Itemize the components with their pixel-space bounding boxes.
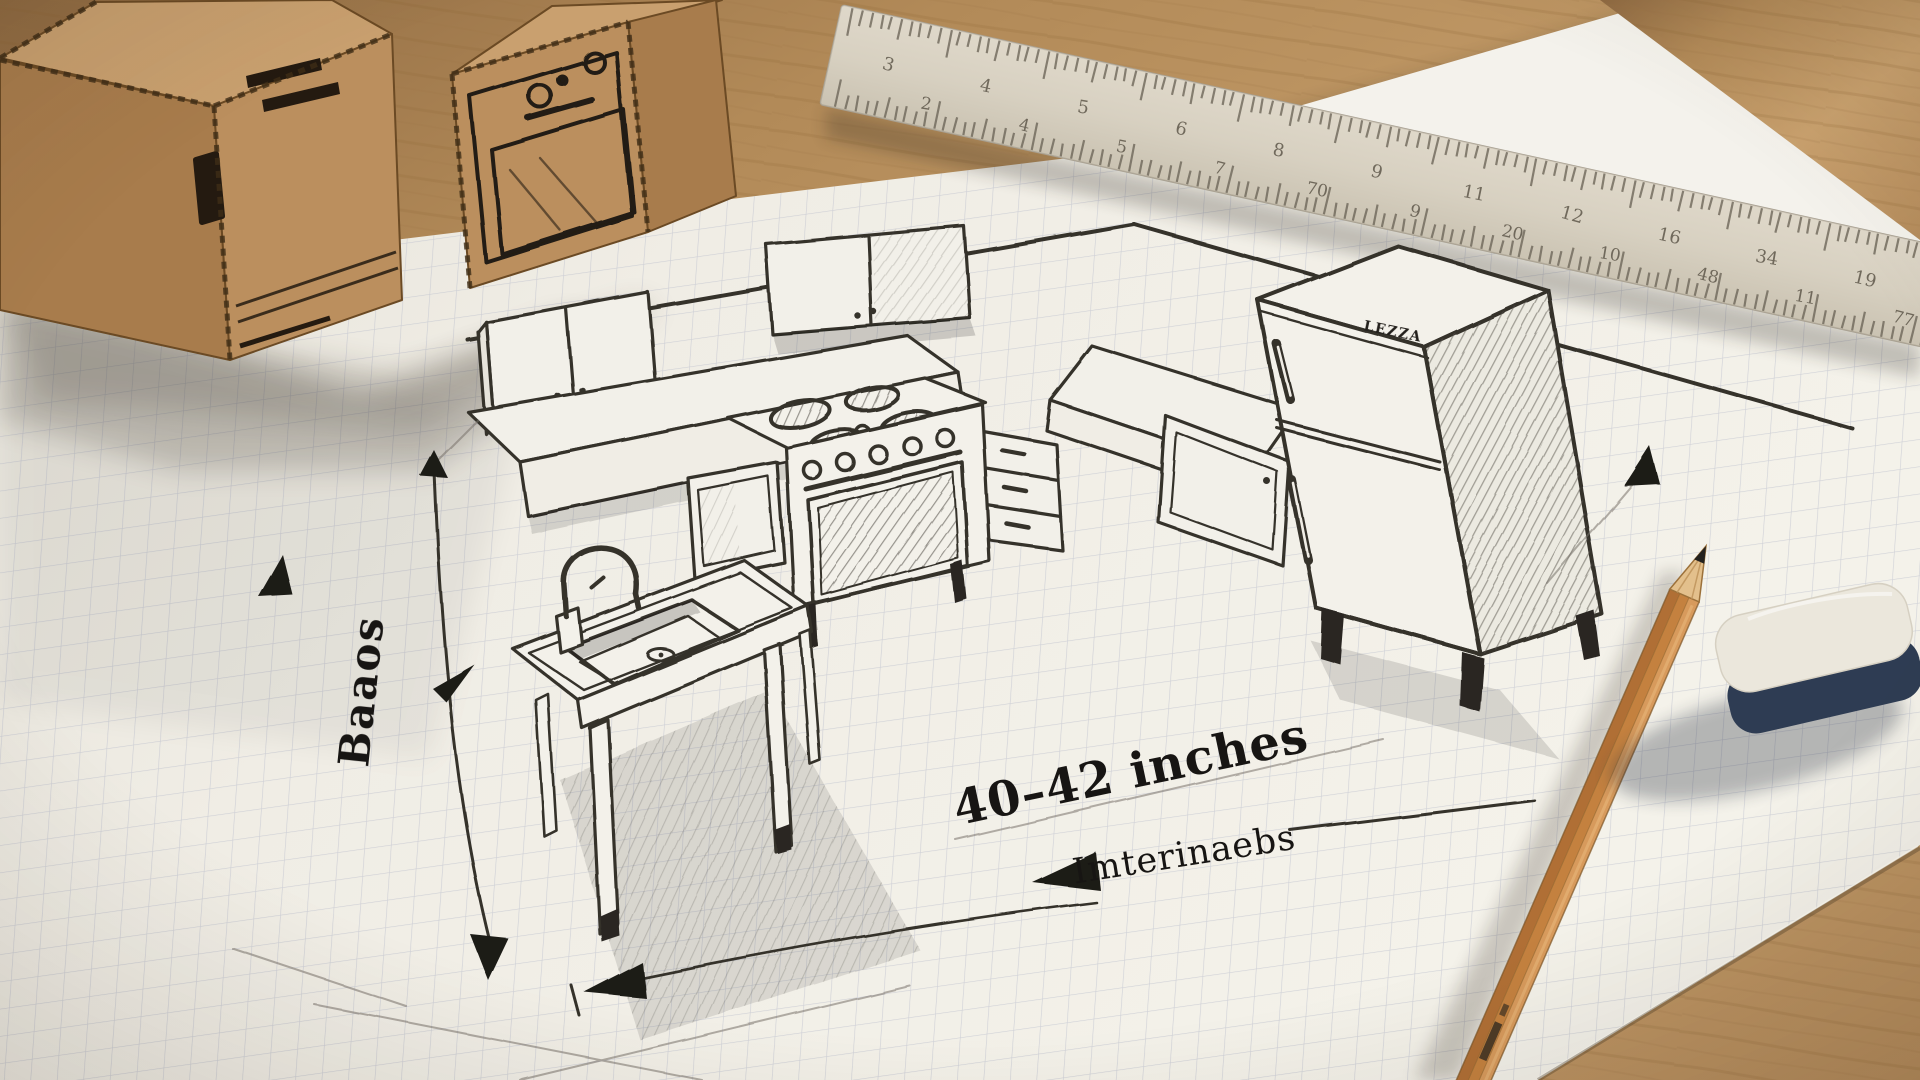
vignette-overlay	[0, 0, 1920, 1080]
scene-canvas: 40–42 inches Imterinaebs Baaos LEZZA 34	[0, 0, 1920, 1080]
desk-scene: 40–42 inches Imterinaebs Baaos LEZZA 34	[0, 0, 1920, 1080]
